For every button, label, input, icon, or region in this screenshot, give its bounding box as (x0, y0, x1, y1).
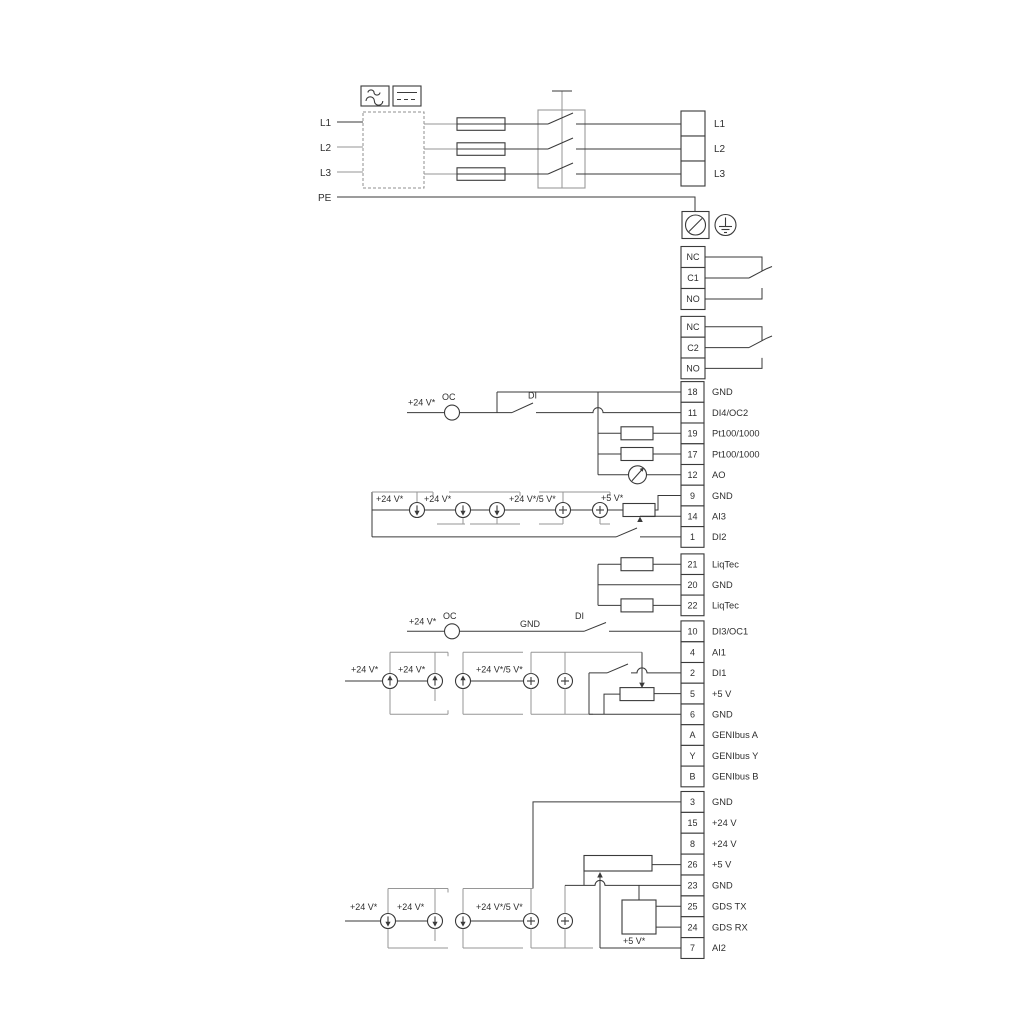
fuse-l2 (457, 143, 505, 156)
relay-terminal-label: C2 (687, 343, 699, 353)
terminal-label: AI2 (712, 943, 726, 953)
v24-label: +24 V* (424, 494, 452, 504)
relay-terminal-label: NO (686, 294, 700, 304)
dc-symbol-icon (393, 86, 421, 106)
terminal-label: +5 V (712, 689, 732, 699)
relay-terminal-label: NC (687, 252, 700, 262)
terminal-label: LiqTec (712, 601, 739, 611)
terminal-label: AI3 (712, 512, 726, 522)
terminal-number: 22 (687, 601, 697, 611)
terminal-block-relay1: NCC1NO (681, 247, 705, 310)
terminal-number: 26 (687, 860, 697, 870)
terminal-number: 6 (690, 710, 695, 720)
mains-input-section: L1 L2 L3 PE (318, 86, 736, 239)
terminal-label: GDS RX (712, 922, 748, 932)
liqtec-sensor-1 (598, 558, 681, 571)
terminal-number: 11 (688, 408, 697, 418)
terminal-block-io3: 3GND15+24 V8+24 V26+5 V23GND25GDS TX24GD… (681, 792, 748, 959)
terminal-number: 18 (687, 387, 697, 397)
terminal-label: +5 V (712, 860, 732, 870)
terminal-label: AI1 (712, 647, 726, 657)
terminal-number: 15 (687, 818, 697, 828)
current-source-icon (381, 914, 396, 929)
relay-terminal-label: C1 (687, 273, 699, 283)
terminal-number: 20 (687, 580, 697, 590)
terminal-number: Y (689, 751, 695, 761)
ai3-potentiometer (623, 496, 681, 523)
current-source-icon (490, 503, 505, 518)
terminal-number: 17 (687, 449, 697, 459)
ai2-gds-section: +24 V* +24 V* +24 V*/5 V* +5 V* (345, 802, 681, 948)
current-source-icon (428, 674, 443, 689)
liqtec-wiring (598, 558, 681, 612)
contactor (505, 91, 681, 188)
terminal-block-liqtec: 21LiqTec20GND22LiqTec (681, 554, 739, 616)
open-collector-icon (445, 405, 460, 420)
terminal-block-relay2: NCC2NO (681, 316, 705, 378)
phase-output-label: L1 (714, 119, 726, 130)
pe-path (337, 197, 736, 239)
io1-wiring: +24 V* OC DI (372, 391, 681, 537)
terminal-label: GENIbus A (712, 730, 759, 740)
terminal-number: 10 (687, 627, 697, 637)
ai1-potentiometer (589, 652, 681, 714)
terminal-cell (681, 161, 705, 186)
terminal-label: GND (712, 797, 733, 807)
terminal-label: GENIbus Y (712, 751, 758, 761)
di-label: DI (575, 611, 584, 621)
fuse-l3 (457, 168, 505, 181)
di3-switch (584, 623, 606, 632)
terminal-label: Pt100/1000 (712, 429, 760, 439)
liqtec-sensor-2 (598, 599, 681, 612)
di2-switch-row (372, 528, 681, 537)
di-label: DI (528, 391, 537, 401)
relay-terminal-label: NC (687, 322, 700, 332)
v24-label: +24 V* (350, 902, 378, 912)
terminal-cell (681, 136, 705, 161)
terminal-number: B (689, 772, 695, 782)
v24-label: +24 V* (408, 398, 436, 408)
terminal-label: DI3/OC1 (712, 627, 748, 637)
voltage-source-icon (524, 914, 539, 929)
mains-l2-label: L2 (320, 143, 332, 154)
terminal-number: 19 (687, 429, 697, 439)
voltage-source-icon (558, 914, 573, 929)
terminal-number: A (689, 730, 695, 740)
current-source-icon (428, 914, 443, 929)
mains-l1-label: L1 (320, 118, 332, 129)
analog-output-meter-icon (598, 466, 681, 484)
terminal-number: 23 (687, 881, 697, 891)
terminal-number: 25 (687, 902, 697, 912)
wiring-diagram-page: { "power_input": ["L1", "L2", "L3", "PE"… (0, 0, 1024, 1024)
terminal-label: GND (712, 580, 733, 590)
ai1-sensor-options: +24 V* +24 V* +24 V*/5 V* (345, 652, 681, 714)
terminal-label: DI4/OC2 (712, 408, 748, 418)
v24-label: +24 V* (351, 665, 379, 675)
fuse-l1 (457, 118, 505, 131)
pt100-sensor-2 (598, 448, 681, 461)
phase-output-label: L3 (714, 169, 726, 180)
terminal-label: DI2 (712, 532, 726, 542)
v24-label: +24 V* (397, 902, 425, 912)
screw-terminal-icon (682, 212, 709, 239)
v5-label: +5 V* (623, 936, 646, 946)
mains-l3-label: L3 (320, 168, 332, 179)
terminal-label: Pt100/1000 (712, 449, 760, 459)
terminal-block-io1: 18GND11DI4/OC219Pt100/100017Pt100/100012… (681, 382, 760, 548)
pt100-sensor-1 (598, 427, 681, 440)
terminal-cell (681, 111, 705, 136)
voltage-source-icon (593, 503, 608, 518)
terminal-number: 9 (690, 491, 695, 501)
terminal-block-io2: 4AI12DI15+5 V6GNDAGENIbus AYGENIbus YBGE… (681, 642, 759, 787)
terminal-number: 8 (690, 839, 695, 849)
terminal-number: 12 (687, 470, 697, 480)
phase-output-label: L2 (714, 144, 726, 155)
current-source-icon (456, 503, 471, 518)
current-source-icon (383, 674, 398, 689)
terminal-number: 7 (690, 943, 695, 953)
earth-ground-icon (715, 215, 736, 236)
di4-switch (512, 403, 533, 413)
oc-label: OC (442, 392, 456, 402)
v24-label: +24 V* (409, 617, 437, 627)
terminal-number: 4 (690, 647, 695, 657)
terminal-label: +24 V (712, 818, 737, 828)
terminal-label: +24 V (712, 839, 737, 849)
voltage-source-icon (556, 503, 571, 518)
di3-wiring: +24 V* OC GND DI (407, 611, 681, 639)
gnd-label: GND (520, 619, 541, 629)
terminal-number: 2 (690, 668, 695, 678)
v24-label: +24 V* (376, 494, 404, 504)
gds-sensor-box: +5 V* (622, 885, 681, 946)
terminal-number: 24 (687, 922, 697, 932)
open-collector-icon (445, 624, 460, 639)
terminal-label: LiqTec (712, 559, 739, 569)
terminal-label: GND (712, 491, 733, 501)
relay2-contact (705, 327, 772, 369)
terminal-label: DI1 (712, 668, 726, 678)
filter-box (363, 112, 424, 188)
terminal-label: AO (712, 470, 725, 480)
v5-label: +5 V* (601, 493, 624, 503)
ai3-sensor-options: +24 V* +24 V* +24 V*/5 V* +5 V* (372, 492, 681, 537)
voltage-source-icon (558, 674, 573, 689)
terminal-label: GND (712, 881, 733, 891)
v24-5-label: +24 V*/5 V* (476, 902, 523, 912)
v24-label: +24 V* (398, 665, 426, 675)
terminal-block-di3: 10DI3/OC1 (681, 621, 748, 642)
oc-label: OC (443, 611, 457, 621)
relay1-contact (705, 257, 772, 299)
mains-pe-label: PE (318, 193, 332, 204)
v24-5-label: +24 V*/5 V* (509, 494, 556, 504)
relay-terminal-label: NO (686, 364, 700, 374)
terminal-label: GND (712, 387, 733, 397)
current-source-icon (456, 914, 471, 929)
current-source-icon (410, 503, 425, 518)
terminal-label: GND (712, 710, 733, 720)
wiring-diagram: L1 L2 L3 PE (0, 0, 1024, 1024)
terminal-number: 5 (690, 689, 695, 699)
terminal-number: 21 (687, 559, 697, 569)
terminal-block-lblock: L1L2L3 (681, 111, 726, 186)
ac-symbol-icon (361, 86, 389, 106)
terminal-number: 1 (690, 532, 695, 542)
current-source-icon (456, 674, 471, 689)
voltage-source-icon (524, 674, 539, 689)
terminal-number: 3 (690, 797, 695, 807)
v24-5-label: +24 V*/5 V* (476, 665, 523, 675)
terminal-number: 14 (687, 512, 697, 522)
terminal-label: GENIbus B (712, 772, 759, 782)
terminal-label: GDS TX (712, 902, 746, 912)
